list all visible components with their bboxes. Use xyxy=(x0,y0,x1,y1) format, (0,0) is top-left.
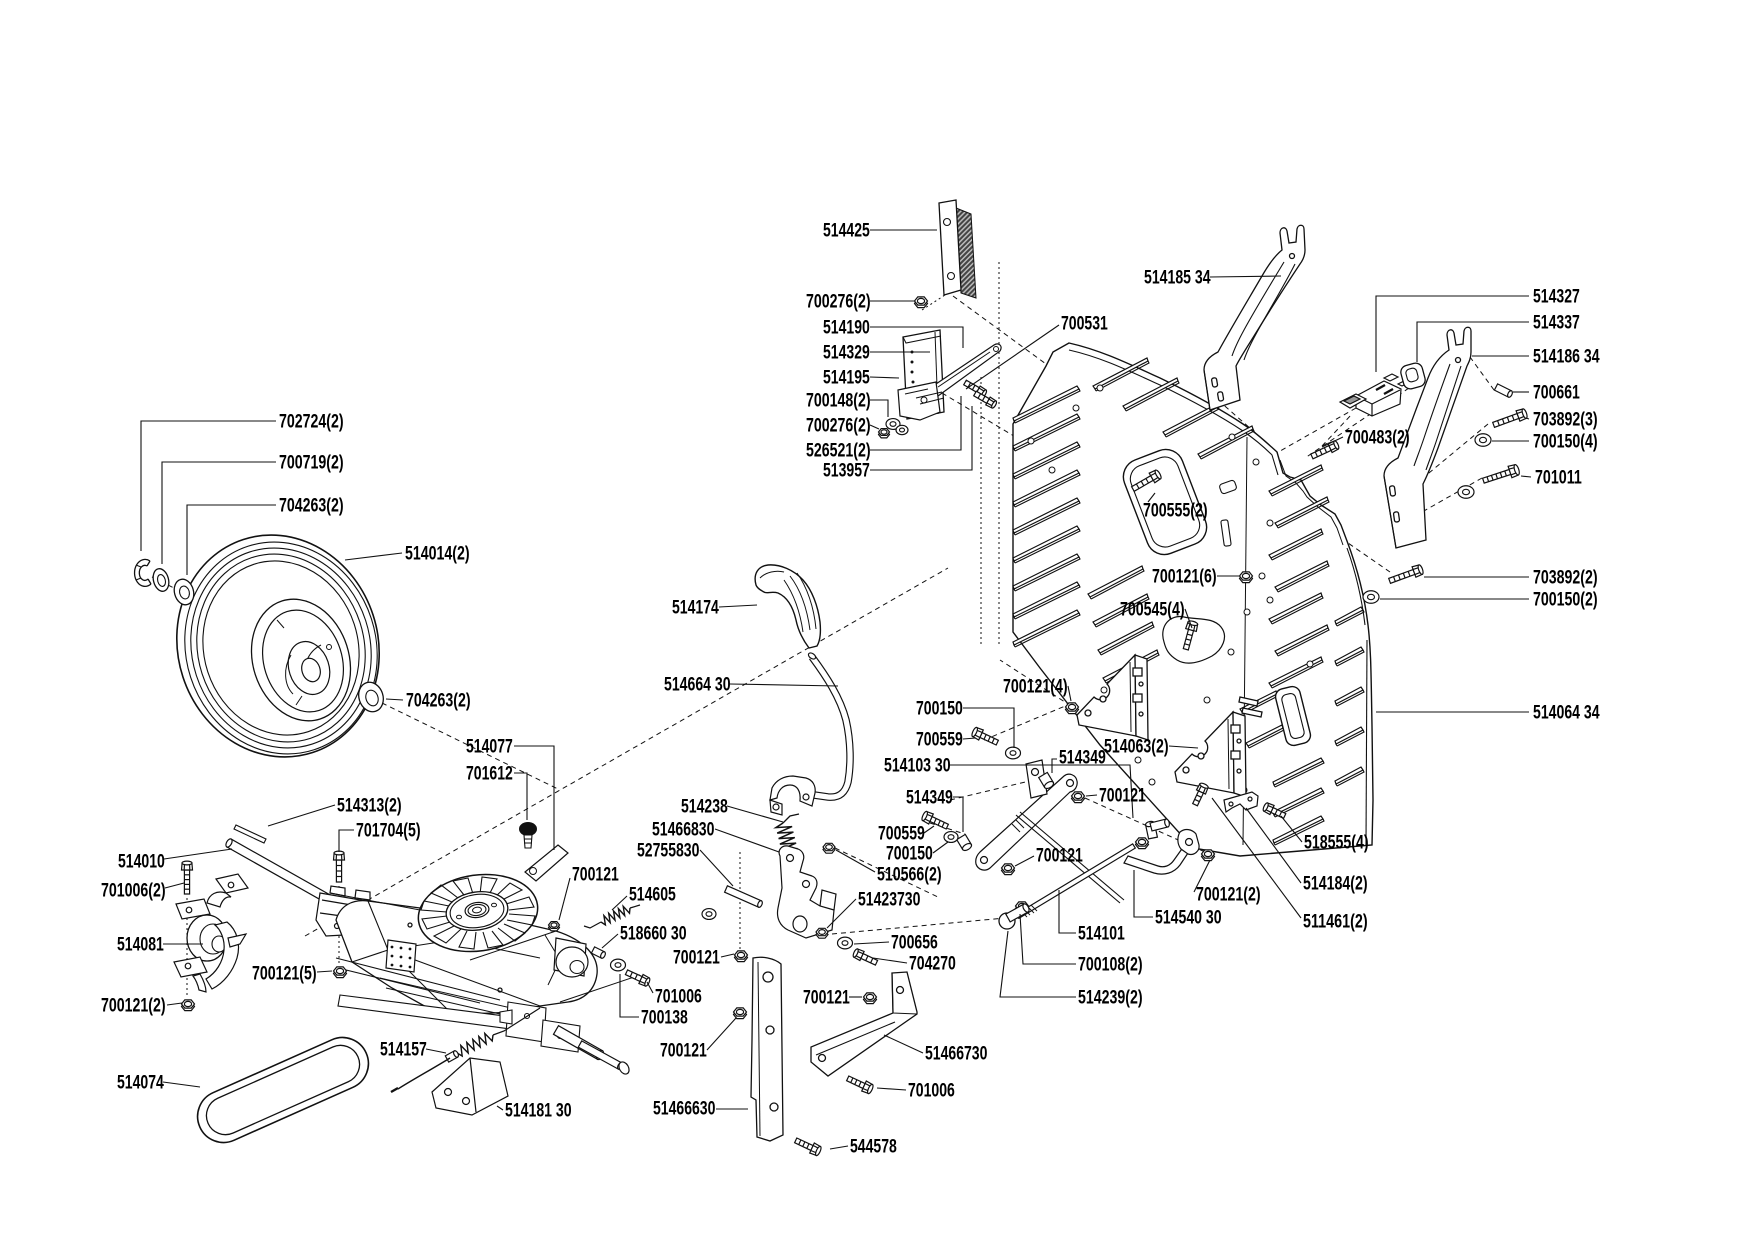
svg-text:51466830: 51466830 xyxy=(652,820,714,841)
svg-text:514101: 514101 xyxy=(1078,924,1125,945)
svg-text:700121(6): 700121(6) xyxy=(1152,567,1217,588)
svg-text:700121: 700121 xyxy=(660,1041,707,1062)
svg-text:704263(2): 704263(2) xyxy=(279,496,344,517)
svg-text:52755830: 52755830 xyxy=(637,841,699,862)
svg-text:510566(2): 510566(2) xyxy=(877,865,942,886)
svg-text:514327: 514327 xyxy=(1533,287,1580,308)
svg-text:514313(2): 514313(2) xyxy=(337,796,402,817)
svg-text:700559: 700559 xyxy=(878,824,925,845)
svg-text:514185 34: 514185 34 xyxy=(1144,268,1211,289)
svg-text:514157: 514157 xyxy=(380,1040,427,1061)
svg-text:514074: 514074 xyxy=(117,1073,164,1094)
svg-text:700150(2): 700150(2) xyxy=(1533,590,1598,611)
svg-text:700719(2): 700719(2) xyxy=(279,453,344,474)
svg-text:700121(2): 700121(2) xyxy=(1196,885,1261,906)
svg-text:700150: 700150 xyxy=(916,699,963,720)
svg-text:700138: 700138 xyxy=(641,1008,688,1029)
svg-text:700121: 700121 xyxy=(1036,846,1083,867)
svg-text:700531: 700531 xyxy=(1061,314,1108,335)
svg-text:514349: 514349 xyxy=(1059,748,1106,769)
svg-text:700656: 700656 xyxy=(891,933,938,954)
svg-text:514190: 514190 xyxy=(823,318,870,339)
svg-text:704263(2): 704263(2) xyxy=(406,691,471,712)
svg-text:702724(2): 702724(2) xyxy=(279,412,344,433)
svg-text:514186 34: 514186 34 xyxy=(1533,347,1600,368)
svg-text:514174: 514174 xyxy=(672,598,719,619)
svg-text:51423730: 51423730 xyxy=(858,890,920,911)
svg-text:514239(2): 514239(2) xyxy=(1078,988,1143,1009)
svg-text:701011: 701011 xyxy=(1535,468,1582,489)
svg-text:514238: 514238 xyxy=(681,797,728,818)
svg-text:514349: 514349 xyxy=(906,788,953,809)
svg-text:514014(2): 514014(2) xyxy=(405,544,470,565)
svg-text:700108(2): 700108(2) xyxy=(1078,955,1143,976)
svg-text:514103 30: 514103 30 xyxy=(884,756,951,777)
svg-text:514425: 514425 xyxy=(823,221,870,242)
svg-text:700121(5): 700121(5) xyxy=(252,964,317,985)
svg-text:514540 30: 514540 30 xyxy=(1155,908,1222,929)
svg-text:700121: 700121 xyxy=(1099,786,1146,807)
svg-text:514181 30: 514181 30 xyxy=(505,1101,572,1122)
svg-text:700148(2): 700148(2) xyxy=(806,391,871,412)
svg-text:518555(4): 518555(4) xyxy=(1304,833,1369,854)
svg-text:700545(4): 700545(4) xyxy=(1120,600,1185,621)
svg-text:701006(2): 701006(2) xyxy=(101,881,166,902)
svg-text:544578: 544578 xyxy=(850,1137,897,1158)
svg-text:701704(5): 701704(5) xyxy=(356,821,421,842)
svg-text:526521(2): 526521(2) xyxy=(806,441,871,462)
svg-text:700150: 700150 xyxy=(886,844,933,865)
svg-text:514329: 514329 xyxy=(823,343,870,364)
svg-text:513957: 513957 xyxy=(823,461,870,482)
svg-text:700121(4): 700121(4) xyxy=(1003,677,1068,698)
svg-text:514184(2): 514184(2) xyxy=(1303,874,1368,895)
svg-text:700483(2): 700483(2) xyxy=(1345,428,1410,449)
svg-text:514081: 514081 xyxy=(117,935,164,956)
svg-text:514077: 514077 xyxy=(466,737,513,758)
svg-text:518660 30: 518660 30 xyxy=(620,924,687,945)
svg-text:704270: 704270 xyxy=(909,954,956,975)
svg-text:514063(2): 514063(2) xyxy=(1104,737,1169,758)
svg-text:700121: 700121 xyxy=(673,948,720,969)
svg-text:700150(4): 700150(4) xyxy=(1533,432,1598,453)
svg-text:701006: 701006 xyxy=(908,1081,955,1102)
svg-text:514195: 514195 xyxy=(823,368,870,389)
svg-text:700555(2): 700555(2) xyxy=(1143,501,1208,522)
svg-text:514664 30: 514664 30 xyxy=(664,675,731,696)
svg-text:703892(2): 703892(2) xyxy=(1533,568,1598,589)
svg-text:51466730: 51466730 xyxy=(925,1044,987,1065)
svg-text:703892(3): 703892(3) xyxy=(1533,410,1598,431)
svg-text:514605: 514605 xyxy=(629,885,676,906)
svg-text:701612: 701612 xyxy=(466,764,513,785)
svg-text:700121: 700121 xyxy=(803,988,850,1009)
svg-text:700121: 700121 xyxy=(572,865,619,886)
svg-text:51466630: 51466630 xyxy=(653,1099,715,1120)
svg-text:514010: 514010 xyxy=(118,852,165,873)
svg-text:514064 34: 514064 34 xyxy=(1533,703,1600,724)
svg-text:511461(2): 511461(2) xyxy=(1303,912,1368,933)
svg-text:514337: 514337 xyxy=(1533,313,1580,334)
svg-text:700559: 700559 xyxy=(916,730,963,751)
svg-text:700276(2): 700276(2) xyxy=(806,416,871,437)
svg-text:700121(2): 700121(2) xyxy=(101,996,166,1017)
svg-text:700661: 700661 xyxy=(1533,383,1580,404)
svg-text:701006: 701006 xyxy=(655,987,702,1008)
svg-text:700276(2): 700276(2) xyxy=(806,292,871,313)
